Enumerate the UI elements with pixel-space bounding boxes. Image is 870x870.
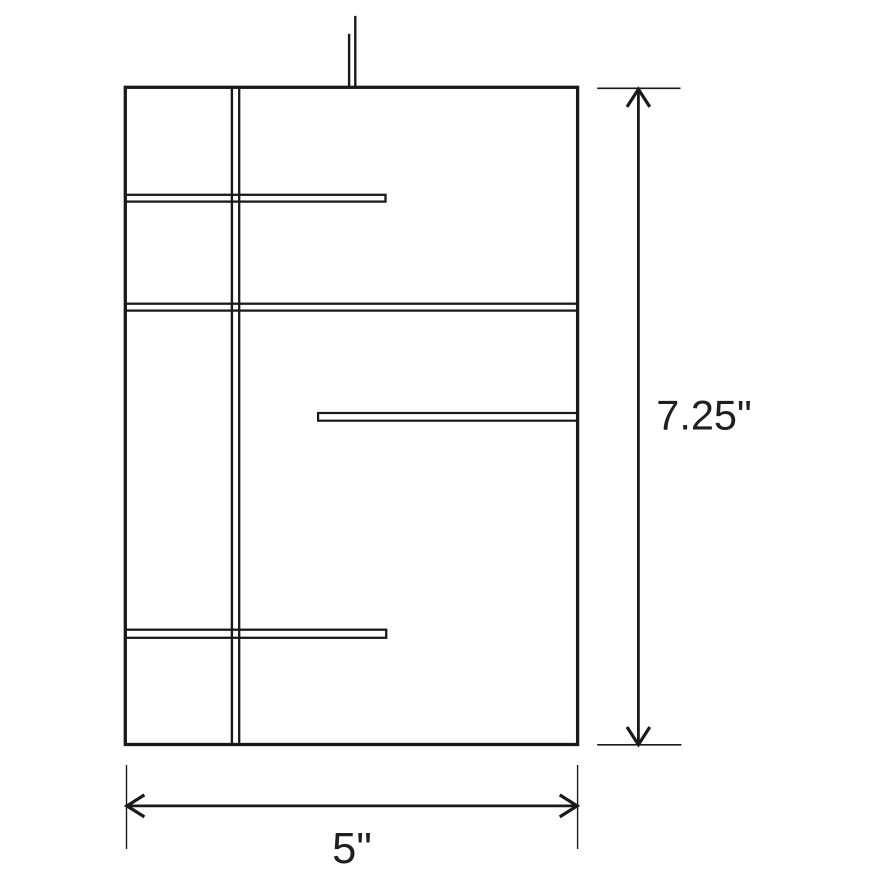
svg-text:7.25": 7.25" (656, 392, 752, 439)
svg-text:5": 5" (332, 825, 372, 870)
